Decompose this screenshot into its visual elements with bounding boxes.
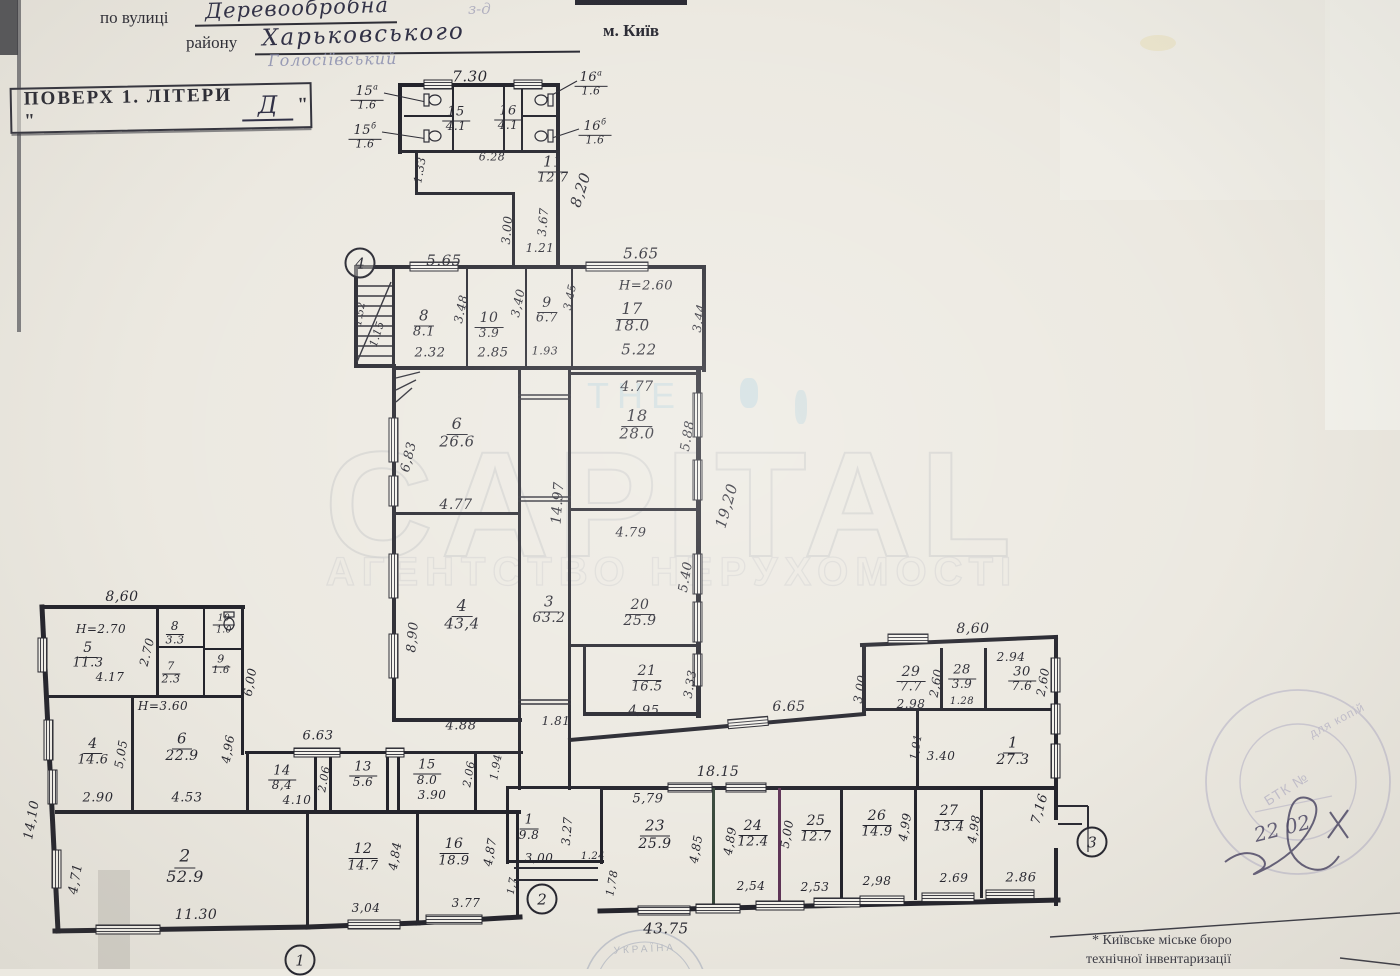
dimension-label: 4.77 (620, 380, 653, 394)
dimension-label: 14.97 (550, 481, 567, 524)
dimension-label: 11.3 (73, 657, 104, 670)
dimension-label: 18.9 (439, 855, 470, 868)
room-number-label: 6 (172, 732, 192, 747)
dimension-label: 2.85 (478, 347, 509, 360)
dimension-label: 5.65 (623, 247, 658, 262)
dimension-label: 14.7 (348, 860, 379, 873)
dimension-label: 2.69 (940, 872, 969, 884)
room-number-label: 11 (538, 155, 568, 170)
entrance-marker-3: 3 (1077, 827, 1108, 858)
dimension-label: 12.7 (538, 172, 569, 185)
dimension-label: 43.75 (643, 922, 688, 937)
room-number-label: 23 (640, 819, 670, 834)
room-number-label: 1 (520, 814, 539, 827)
dimension-label: 2,53 (801, 881, 830, 893)
room-number-label: 3 (539, 595, 559, 610)
dimension-label: 12.7 (801, 831, 832, 844)
dimension-label: 5.6 (353, 776, 374, 788)
room-number-label: 1 (1003, 736, 1023, 751)
dimension-label: 63.2 (532, 611, 565, 625)
dimension-label: 3,04 (352, 902, 381, 914)
dimension-label: 8.0 (417, 774, 438, 786)
room-number-label: 24 (739, 819, 768, 833)
floorplan-drawing: THE CAPITAL АГЕНТСТВО НЕРУХОМОСТІ (0, 0, 1400, 969)
scanned-floorplan-page: по вулиці Деревообробна з-д району Харьк… (0, 0, 1400, 969)
dimension-label: 7.30 (452, 70, 487, 85)
room-number-label: 16 (494, 105, 522, 118)
dimension-label: 9.8 (519, 829, 540, 841)
dimension-label: 4.79 (616, 527, 647, 540)
dimension-label: 4.88 (446, 720, 477, 733)
dimension-label: 1.6 (212, 666, 229, 676)
dimension-label: 1.21 (526, 242, 555, 254)
room-number-label: 15 (413, 759, 441, 772)
dimension-label: 8.1 (413, 326, 435, 339)
watermark: THE CAPITAL АГЕНТСТВО НЕРУХОМОСТІ (325, 375, 1020, 594)
room-number-label: 14 (268, 765, 296, 778)
dimension-label: 2.98 (897, 698, 926, 710)
dimension-label: 3,00 (525, 852, 554, 864)
dimension-label: 8,90 (405, 621, 421, 653)
dimension-label: 3.3 (166, 635, 185, 646)
room-number-label: 16 (440, 837, 469, 851)
room-number-label: 12 (349, 842, 378, 856)
dimension-label: 3.00 (500, 215, 514, 245)
dimension-label: 3.77 (452, 897, 481, 909)
room-number-label: 2 (174, 849, 195, 866)
dimension-label: 14.9 (862, 826, 893, 839)
dimension-label: 3.40 (927, 750, 956, 762)
dimension-label: 43,4 (444, 617, 479, 632)
dimension-label: 4,95 (629, 705, 660, 718)
dimension-label: 11.30 (175, 908, 218, 922)
dimension-label: 1.6 (586, 135, 605, 146)
dimension-label: 6.7 (536, 312, 558, 325)
dimension-label: 8,60 (956, 622, 989, 636)
dimension-label: 3.27 (560, 816, 574, 846)
room-number-label: 8 (166, 620, 184, 632)
room-number-label: 9 (537, 296, 556, 310)
svg-text:БТК №: БТК № (1261, 769, 1311, 809)
dimension-label: 1.81 (542, 715, 571, 727)
dimension-label: 25.9 (623, 614, 656, 628)
dimension-label: 6.28 (479, 152, 506, 163)
dimension-label: 25.9 (638, 837, 671, 851)
dimension-label: 2.90 (83, 792, 114, 805)
entrance-marker-2: 2 (527, 884, 558, 915)
bti-footer-note: * Київське міське бюро технічної інвента… (1092, 932, 1232, 970)
room-number-label: 16б (579, 119, 612, 133)
room-number-label: 15 (442, 106, 470, 119)
dimension-label: 1.93 (532, 346, 559, 357)
dimension-label: Н=2.60 (619, 280, 673, 293)
dimension-label: Н=3.60 (138, 700, 188, 712)
dimension-label: 28.0 (619, 427, 654, 442)
dimension-label: 1.28 (950, 697, 974, 707)
dimension-label: 18.15 (697, 765, 740, 779)
room-number-label: 29 (897, 665, 926, 679)
room-number-label: 15а (351, 84, 384, 98)
dimension-label: 2,98 (863, 875, 892, 887)
dimension-label: 7.6 (1012, 680, 1033, 692)
room-number-label: 4 (452, 598, 473, 614)
room-number-label: 4 (83, 737, 102, 751)
dimension-label: 8,60 (105, 590, 138, 604)
room-number-label: 26 (863, 809, 892, 823)
dimension-label: 14.6 (78, 754, 109, 767)
entrance-marker-1: 1 (285, 945, 316, 976)
dimension-label: 2.94 (997, 651, 1026, 663)
svg-text:УКРАЇНА: УКРАЇНА (613, 941, 676, 956)
room-number-label: 6 (447, 416, 468, 432)
entrance-marker-4: 4 (345, 248, 376, 279)
room-number-label: 5 (78, 641, 97, 655)
dimension-label: 18.0 (614, 319, 649, 334)
dimension-label: 3.90 (418, 789, 447, 801)
room-number-label: 15б (349, 123, 382, 137)
dimension-label: 4.1 (446, 120, 467, 132)
room-number-label: 27 (935, 804, 964, 818)
dimension-label: 7.7 (900, 681, 922, 694)
dimension-label: 26.6 (439, 435, 474, 450)
svg-text:для копій: для копій (1307, 700, 1367, 741)
dimension-label: 13.4 (934, 821, 965, 834)
dimension-label: 6.63 (303, 730, 334, 743)
dimension-label: 12.4 (738, 836, 769, 849)
room-number-label: 21 (633, 664, 662, 678)
dimension-label: Н=2.70 (76, 623, 126, 635)
dimension-label: 5.22 (621, 343, 656, 358)
dimension-label: 4.53 (172, 792, 203, 805)
dimension-label: 8,4 (272, 779, 293, 791)
dimension-label: 6.65 (772, 700, 805, 714)
dimension-label: 4.1 (498, 119, 519, 131)
dimension-label: 1.6 (358, 100, 377, 111)
room-number-label: 16а (575, 70, 608, 84)
dimension-label: 3.67 (536, 207, 550, 237)
round-stamp: для копій БТК № (1206, 690, 1390, 874)
dimension-label: 1.6 (356, 139, 375, 150)
dimension-label: 2.86 (1006, 872, 1037, 885)
room-number-label: 20 (626, 598, 655, 612)
footer-line2: технічної інвентаризації (1086, 951, 1232, 970)
footer-line1: * Київське міське бюро (1092, 932, 1232, 951)
svg-text:АГЕНТСТВО НЕРУХОМОСТІ: АГЕНТСТВО НЕРУХОМОСТІ (326, 550, 1018, 594)
room-number-label: 30 (1008, 666, 1036, 679)
dimension-label: 1.24 (581, 852, 605, 862)
dimension-label: 3.9 (479, 327, 500, 339)
dimension-label: 52.9 (166, 869, 204, 885)
dimension-label: 2,54 (737, 880, 766, 892)
dimension-label: 4.77 (439, 498, 472, 512)
room-number-label: 28 (948, 664, 976, 677)
dimension-label: 22.9 (165, 749, 198, 763)
dimension-label: 3.9 (952, 678, 973, 690)
room-number-label: 13 (349, 761, 377, 774)
room-number-label: 25 (802, 814, 831, 828)
room-number-label: 17 (616, 301, 647, 317)
dimension-label: 2.32 (415, 347, 446, 360)
dimension-label: 1.0 (216, 627, 232, 636)
room-number-label: 9 (212, 654, 230, 665)
room-number-label: 7 (162, 661, 180, 672)
dimension-label: 2.3 (162, 674, 181, 685)
dimension-label: 27.3 (996, 753, 1029, 767)
dimension-label: 5,79 (633, 793, 664, 806)
room-number-label: 10 (213, 615, 235, 624)
stamp-date-handwritten: 22 02 (1250, 810, 1312, 847)
room-number-label: 18 (621, 408, 652, 424)
room-number-label: 8 (414, 309, 434, 324)
dimension-label: 16.5 (632, 681, 663, 694)
dimension-label: 4.10 (283, 794, 312, 806)
room-number-label: 10 (475, 311, 504, 325)
dimension-label: 1.6 (582, 86, 601, 97)
dimension-label: 5.65 (426, 254, 461, 269)
dimension-label: 4.17 (96, 671, 125, 683)
